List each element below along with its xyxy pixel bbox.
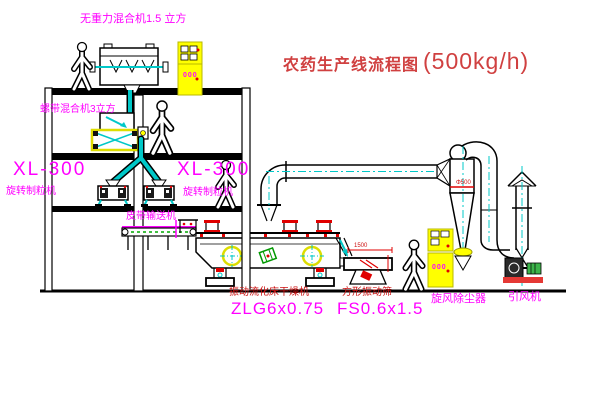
granulator-left-icon bbox=[95, 180, 131, 207]
dryer-top-stubs bbox=[204, 220, 332, 233]
sieve-name-label: 方形振动筛 bbox=[342, 288, 392, 298]
fan-base bbox=[503, 277, 543, 283]
second-mixer-label: 螺带混合机3立方 bbox=[40, 105, 116, 115]
granulator-right-icon bbox=[141, 180, 177, 207]
granulator-right-model: XL-300 bbox=[177, 160, 250, 179]
vibrating-sieve-icon bbox=[340, 247, 392, 284]
sieve-dimension-label: 1500 bbox=[354, 243, 367, 249]
person-icon bbox=[74, 43, 90, 90]
title-capacity: (500kg/h) bbox=[423, 48, 529, 75]
belt-conveyor-label: 皮带输送机 bbox=[126, 212, 176, 222]
gravity-free-mixer bbox=[90, 44, 168, 93]
dryer-name-label: 振动流化床干燥机 bbox=[229, 288, 309, 298]
fan-motor-icon bbox=[527, 263, 541, 274]
dryer-flange-bolts bbox=[200, 234, 339, 237]
exhaust-duct bbox=[257, 161, 445, 221]
sieve-model-label: FS0.6x1.5 bbox=[337, 300, 424, 317]
cabinet-display-right: 000 bbox=[432, 264, 447, 271]
title-text: 农药生产线流程图 bbox=[283, 51, 419, 75]
control-cabinet-right-top-icon bbox=[428, 229, 453, 251]
diagram-title: 农药生产线流程图 (500kg/h) bbox=[283, 48, 529, 75]
fan-name-label: 引风机 bbox=[508, 292, 541, 303]
belt-conveyor-icon bbox=[122, 220, 198, 250]
top-mixer-label: 无重力混合机1.5 立方 bbox=[80, 14, 186, 25]
cyclone-name-label: 旋风除尘器 bbox=[431, 294, 486, 305]
flow-diagram-canvas: 农药生产线流程图 (500kg/h) 无重力混合机1.5 立方 螺带混合机3立方… bbox=[0, 0, 600, 403]
dryer-legs bbox=[206, 268, 334, 286]
granulator-right-name: 旋转制粒机 bbox=[183, 188, 233, 198]
person-icon bbox=[153, 101, 171, 153]
draft-fan-icon bbox=[503, 258, 543, 283]
person-icon bbox=[406, 240, 423, 289]
granulator-left-model: XL-300 bbox=[13, 160, 86, 179]
cyclone-dimension-label: Φ500 bbox=[456, 180, 471, 186]
column-right bbox=[242, 88, 250, 291]
granulator-left-name: 旋转制粒机 bbox=[6, 187, 56, 197]
dryer-model-label: ZLG6x0.75 bbox=[231, 300, 324, 317]
column-middle bbox=[134, 95, 143, 291]
control-cabinet-top-icon bbox=[178, 42, 202, 95]
cabinet-display-top: 000 bbox=[183, 72, 198, 79]
fluid-bed-dryer-icon bbox=[196, 220, 352, 286]
